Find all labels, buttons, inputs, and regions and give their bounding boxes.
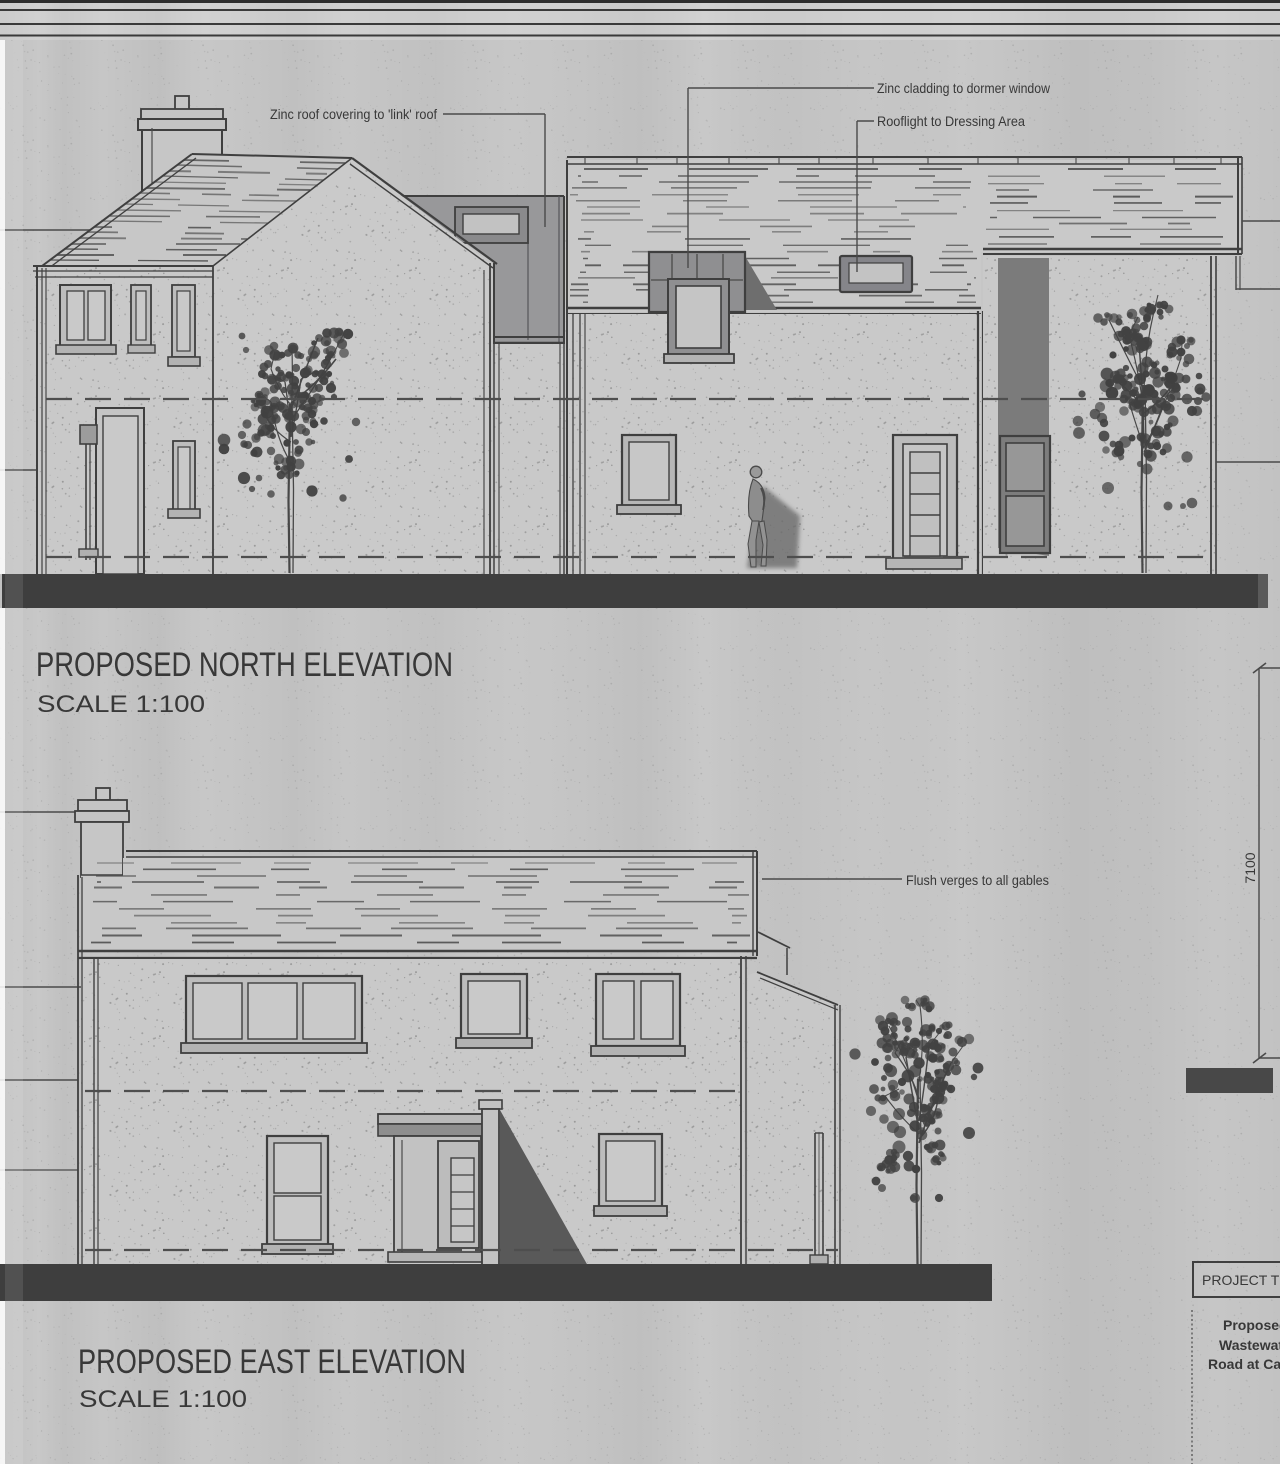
svg-text:PROPOSED NORTH ELEVATION: PROPOSED NORTH ELEVATION [36,646,453,684]
svg-text:Road at Castlebar: Road at Castlebar [1208,1356,1280,1372]
svg-text:Zinc roof covering to 'link' r: Zinc roof covering to 'link' roof [270,106,437,122]
svg-text:PROPOSED EAST ELEVATION: PROPOSED EAST ELEVATION [78,1343,466,1381]
svg-text:Flush verges to all gables: Flush verges to all gables [906,872,1049,888]
svg-text:Wastewater Treatm: Wastewater Treatm [1219,1337,1280,1353]
svg-text:SCALE 1:100: SCALE 1:100 [37,691,205,718]
svg-text:Zinc cladding to dormer window: Zinc cladding to dormer window [877,80,1051,96]
svg-text:SCALE 1:100: SCALE 1:100 [79,1386,247,1413]
svg-text:Proposed Dwelling: Proposed Dwelling [1223,1317,1280,1333]
svg-text:PROJECT TITLE: PROJECT TITLE [1202,1272,1280,1288]
svg-text:7100: 7100 [1242,852,1258,883]
svg-text:Rooflight to Dressing Area: Rooflight to Dressing Area [877,113,1025,129]
